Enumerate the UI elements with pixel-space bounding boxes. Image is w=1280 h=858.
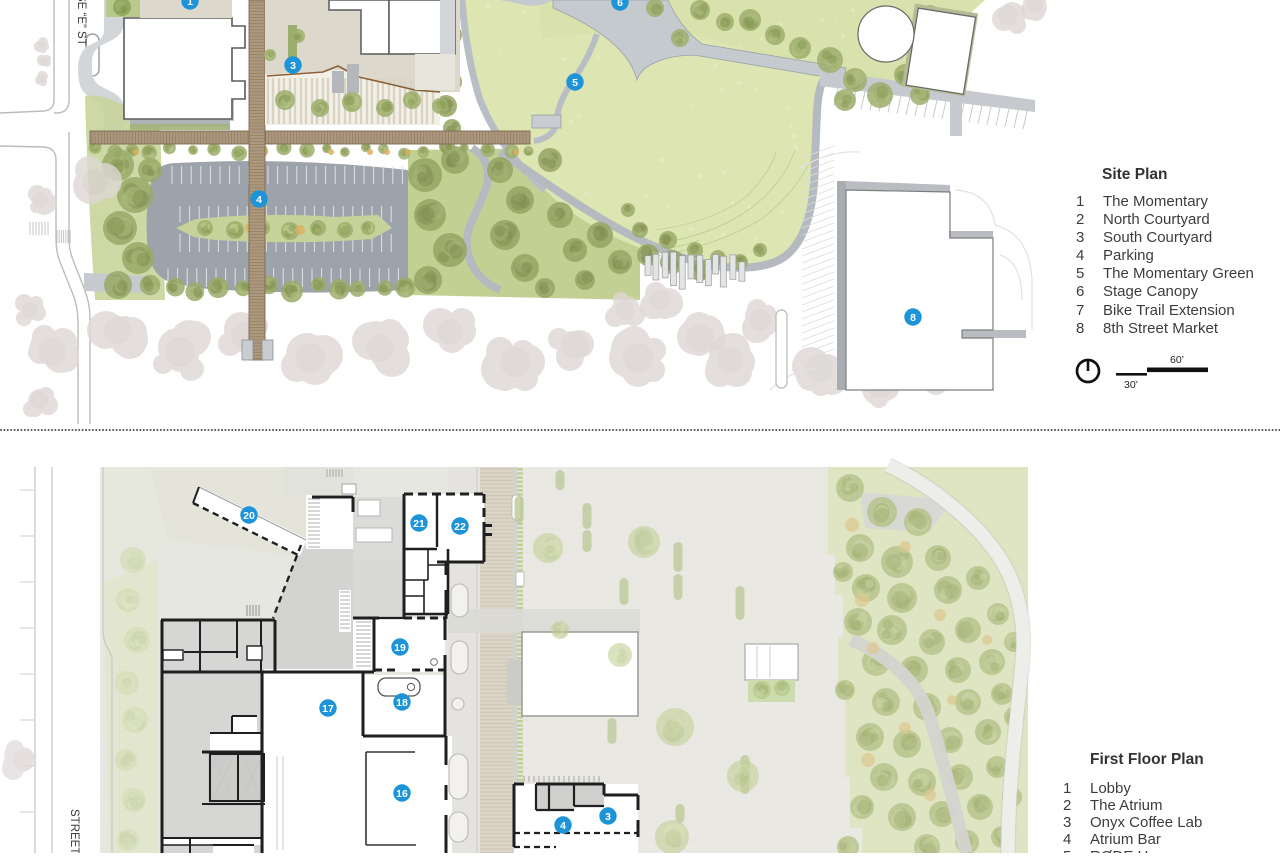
svg-text:6: 6	[1076, 283, 1084, 300]
svg-text:North Courtyard: North Courtyard	[1103, 211, 1210, 228]
svg-text:5: 5	[1076, 265, 1084, 282]
svg-text:16: 16	[396, 788, 408, 800]
svg-text:The Momentary: The Momentary	[1103, 193, 1209, 210]
svg-text:8: 8	[910, 312, 916, 324]
svg-text:The Momentary Green: The Momentary Green	[1103, 265, 1254, 282]
svg-text:SE “E” ST: SE “E” ST	[75, 0, 87, 46]
svg-text:4: 4	[256, 194, 262, 206]
svg-text:First Floor Plan: First Floor Plan	[1090, 751, 1204, 768]
svg-text:RØDE House: RØDE House	[1090, 848, 1181, 853]
svg-text:Site Plan: Site Plan	[1102, 166, 1167, 183]
svg-text:1: 1	[1063, 780, 1071, 797]
svg-text:2: 2	[1076, 211, 1084, 228]
svg-text:19: 19	[394, 642, 406, 654]
svg-text:Parking: Parking	[1103, 247, 1154, 264]
svg-text:1: 1	[1076, 193, 1084, 210]
svg-text:South Courtyard: South Courtyard	[1103, 229, 1212, 246]
svg-text:2: 2	[1063, 797, 1071, 814]
svg-text:8th Street Market: 8th Street Market	[1103, 320, 1219, 337]
svg-text:Bike Trail Extension: Bike Trail Extension	[1103, 302, 1235, 319]
svg-text:18: 18	[396, 697, 408, 709]
svg-text:4: 4	[560, 820, 566, 832]
svg-text:6: 6	[617, 0, 623, 9]
svg-text:5: 5	[1063, 848, 1071, 853]
svg-text:3: 3	[290, 60, 296, 72]
svg-text:3: 3	[605, 811, 611, 823]
svg-text:4: 4	[1076, 247, 1084, 264]
svg-text:3: 3	[1063, 814, 1071, 831]
svg-text:Stage Canopy: Stage Canopy	[1103, 283, 1199, 300]
svg-text:21: 21	[413, 518, 425, 530]
svg-text:Onyx Coffee Lab: Onyx Coffee Lab	[1090, 814, 1202, 831]
svg-text:STREET: STREET	[68, 809, 80, 853]
svg-text:3: 3	[1076, 229, 1084, 246]
svg-text:The Atrium: The Atrium	[1090, 797, 1163, 814]
svg-text:17: 17	[322, 703, 334, 715]
svg-text:Atrium Bar: Atrium Bar	[1090, 831, 1161, 848]
svg-text:Lobby: Lobby	[1090, 780, 1131, 797]
svg-text:1: 1	[187, 0, 193, 8]
svg-text:20: 20	[243, 510, 255, 522]
svg-text:5: 5	[572, 77, 578, 89]
svg-text:4: 4	[1063, 831, 1071, 848]
svg-text:30’: 30’	[1124, 379, 1138, 391]
svg-text:60’: 60’	[1170, 354, 1184, 366]
svg-text:22: 22	[454, 521, 466, 533]
svg-text:7: 7	[1076, 302, 1084, 319]
svg-text:8: 8	[1076, 320, 1084, 337]
